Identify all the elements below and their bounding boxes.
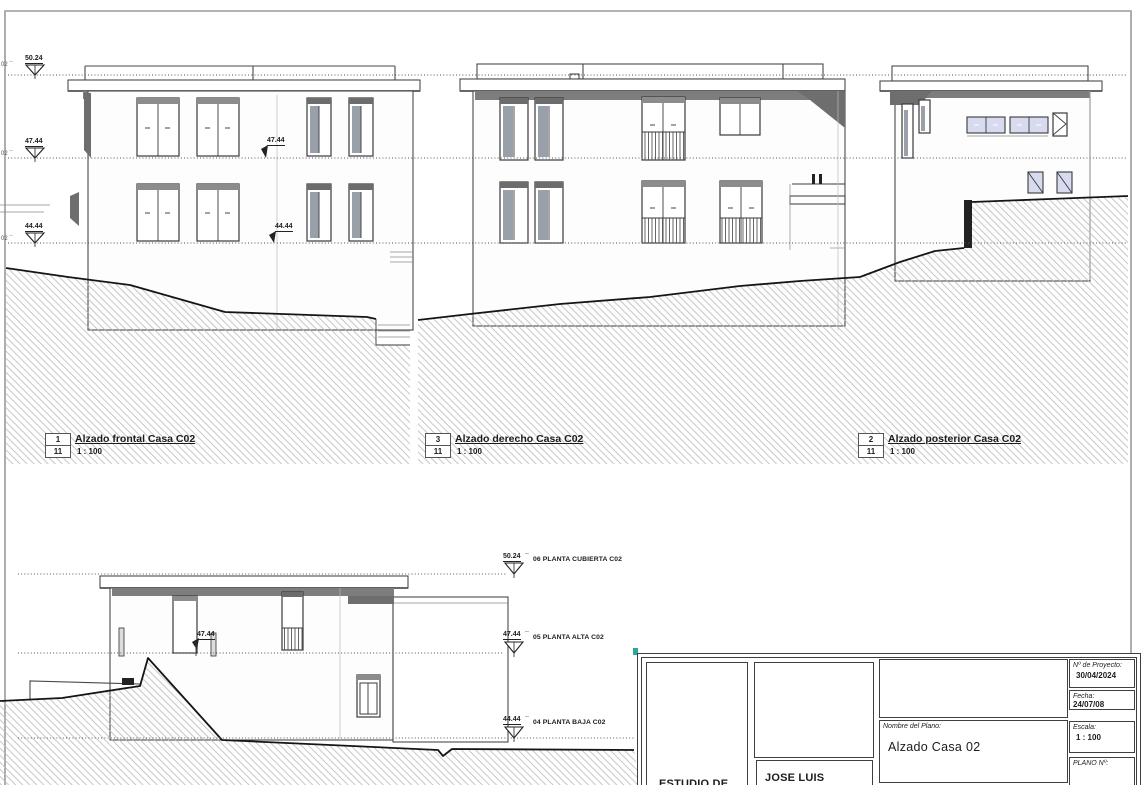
edge-cut-label: 02 ¯ (1, 236, 13, 242)
project-number-cell: Nº de Proyecto: 30/04/2024 (1069, 659, 1135, 688)
level-value-cubierta: 50.24 (503, 553, 521, 562)
level-name-baja: 04 PLANTA BAJA C02 (533, 720, 606, 727)
level-value-baja: 44.44 (503, 716, 521, 725)
plan-name-label: Nombre del Plano: (883, 723, 1067, 730)
studio-cell: ESTUDIO DE (646, 662, 748, 785)
view-number-box: 2 11 (858, 433, 884, 458)
title-block: ESTUDIO DE JOSE LUIS Nombre del Plano: A… (637, 653, 1141, 785)
spot-elevation-value: 47.44 (197, 631, 215, 640)
date-label: Fecha: (1073, 693, 1134, 700)
view-number: 2 (859, 434, 883, 446)
view-number: 3 (426, 434, 450, 446)
empty-cell (879, 659, 1068, 718)
edge-cut-label: 02 ¯ (1, 62, 13, 68)
level-value-cubierta: 50.24 (25, 55, 43, 64)
level-value-baja: 44.44 (25, 223, 43, 232)
scale-cell: Escala: 1 : 100 (1069, 721, 1135, 753)
view-scale: 1 : 100 (77, 447, 195, 456)
plan-name-value: Alzado Casa 02 (888, 740, 1067, 754)
architect-name: JOSE LUIS (765, 772, 872, 784)
project-number-value: 30/04/2024 (1076, 671, 1134, 680)
view-sheet: 11 (859, 446, 883, 457)
plan-name-cell: Nombre del Plano: Alzado Casa 02 (879, 720, 1068, 783)
view-number-box: 1 11 (45, 433, 71, 458)
view-number-box: 3 11 (425, 433, 451, 458)
level-value-alta: 47.44 (503, 631, 521, 640)
architectural-sheet: 02 ¯ 02 ¯ 02 ¯ 50.24 47.44 44.44 47.44 4… (0, 0, 1142, 785)
leader-tick: ¯ (525, 632, 529, 639)
view-label-posterior: 2 11 Alzado posterior Casa C02 1 : 100 (858, 433, 1021, 458)
spot-elevation-value: 44.44 (275, 223, 293, 232)
view-sheet: 11 (426, 446, 450, 457)
view-label-derecho: 3 11 Alzado derecho Casa C02 1 : 100 (425, 433, 583, 458)
level-value-alta: 47.44 (25, 138, 43, 147)
date-cell: Fecha: 24/07/08 (1069, 690, 1135, 710)
view-title: Alzado derecho Casa C02 (455, 433, 583, 445)
spot-elevation-value: 47.44 (267, 137, 285, 146)
view-sheet: 11 (46, 446, 70, 457)
view-label-frontal: 1 11 Alzado frontal Casa C02 1 : 100 (45, 433, 195, 458)
edge-cut-label: 02 ¯ (1, 151, 13, 157)
level-name-alta: 05 PLANTA ALTA C02 (533, 635, 604, 642)
project-number-label: Nº de Proyecto: (1073, 662, 1134, 669)
plan-number-cell: PLANO Nº: (1069, 757, 1135, 785)
leader-tick: ¯ (525, 554, 529, 561)
view-scale: 1 : 100 (457, 447, 583, 456)
plan-number-label: PLANO Nº: (1073, 760, 1134, 767)
studio-name: ESTUDIO DE (659, 779, 728, 785)
date-value: 24/07/08 (1073, 700, 1134, 709)
architect-cell: JOSE LUIS (756, 760, 873, 785)
leader-tick: ¯ (525, 717, 529, 724)
view-title: Alzado posterior Casa C02 (888, 433, 1021, 445)
scale-value: 1 : 100 (1076, 733, 1134, 742)
view-number: 1 (46, 434, 70, 446)
view-title: Alzado frontal Casa C02 (75, 433, 195, 445)
logo-cell (754, 662, 874, 758)
view-scale: 1 : 100 (890, 447, 1021, 456)
level-name-cubierta: 06 PLANTA CUBIERTA C02 (533, 557, 622, 564)
scale-label: Escala: (1073, 724, 1134, 731)
